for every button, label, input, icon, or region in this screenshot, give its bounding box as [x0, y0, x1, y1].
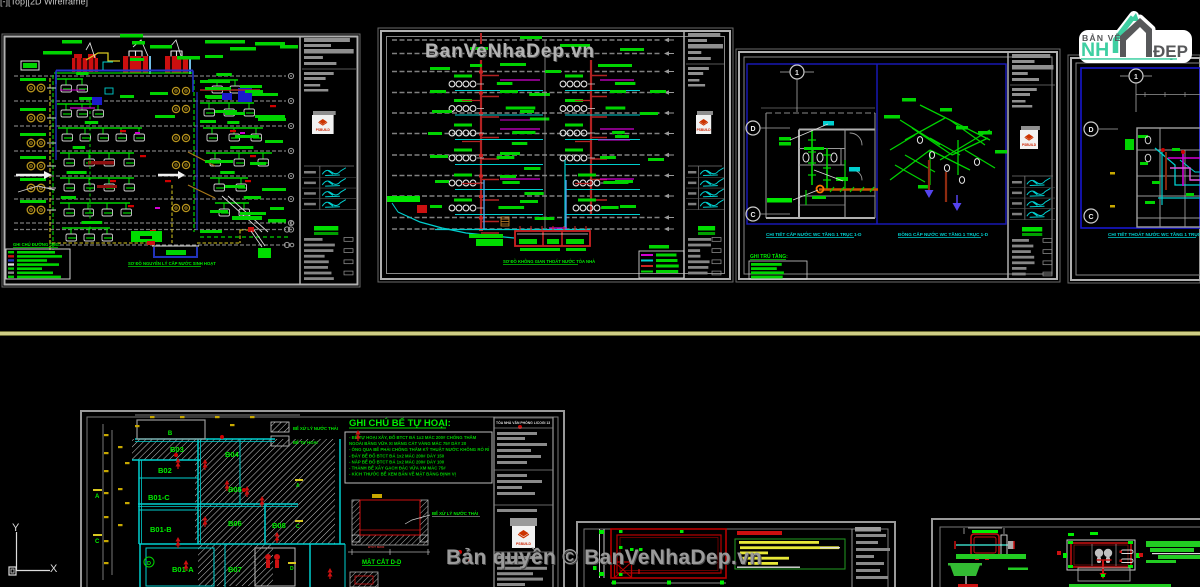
svg-text:GHI TRÚ TẦNG:: GHI TRÚ TẦNG:: [750, 253, 788, 260]
svg-text:D: D: [750, 126, 755, 133]
svg-text:B01-B: B01-B: [150, 525, 172, 534]
svg-text:B07: B07: [228, 565, 242, 574]
svg-text:C: C: [1088, 214, 1093, 221]
svg-text:GHI CHÚ BỂ TỰ HOẠI:: GHI CHÚ BỂ TỰ HOẠI:: [349, 417, 451, 429]
svg-text:B01-A: B01-A: [172, 565, 194, 574]
svg-text:D: D: [147, 561, 151, 567]
svg-text:C: C: [750, 212, 755, 219]
svg-text:1: 1: [1134, 74, 1138, 81]
svg-text:ĐẸP: ĐẸP: [1153, 42, 1188, 61]
svg-text:B08: B08: [272, 521, 286, 530]
svg-text:BanVeNhaDep.vn: BanVeNhaDep.vn: [425, 41, 595, 62]
svg-text:- BỂ TỰ HOẠI XÂY, ĐỔ BTCT ĐÁ 1: - BỂ TỰ HOẠI XÂY, ĐỔ BTCT ĐÁ 1x2 MÁC 200…: [349, 435, 477, 440]
svg-text:- NẮP BỂ ĐỔ BTCT ĐÁ 1x2 MÁC 20: - NẮP BỂ ĐỔ BTCT ĐÁ 1x2 MÁC 200# DÀY 100: [349, 459, 445, 464]
svg-text:SƠ ĐỒ NGUYÊN LÝ CẤP NƯỚC SINH: SƠ ĐỒ NGUYÊN LÝ CẤP NƯỚC SINH HOẠT: [128, 261, 216, 266]
svg-text:ĐỒNG CẤP NƯỚC WC TẦNG 1 TRỤC 1: ĐỒNG CẤP NƯỚC WC TẦNG 1 TRỤC 1-D: [898, 230, 989, 237]
svg-text:TÒA NHÀ VĂN PHÒNG LICOGI 13: TÒA NHÀ VĂN PHÒNG LICOGI 13: [496, 420, 550, 425]
svg-text:- ĐÁY BỂ ĐỔ BTCT ĐÁ 1x2 MÁC 20: - ĐÁY BỂ ĐỔ BTCT ĐÁ 1x2 MÁC 200# DÀY 150: [349, 453, 445, 458]
svg-text:B06: B06: [228, 519, 242, 528]
svg-text:PSBUILD: PSBUILD: [316, 128, 331, 132]
svg-text:NH: NH: [1081, 39, 1109, 61]
svg-text:CHI TIẾT CẤP NƯỚC WC TẦNG 1 TR: CHI TIẾT CẤP NƯỚC WC TẦNG 1 TRỤC 1-D: [766, 230, 862, 237]
svg-text:C: C: [95, 539, 100, 545]
svg-text:B04: B04: [225, 450, 240, 459]
svg-text:B01-C: B01-C: [148, 493, 170, 502]
svg-text:Bản quyền © BanVeNhaDep.vn: Bản quyền © BanVeNhaDep.vn: [446, 546, 762, 569]
svg-text:B: B: [168, 431, 173, 437]
svg-text:SƠ ĐỒ KHÔNG GIAN THOÁT NƯỚC TÒ: SƠ ĐỒ KHÔNG GIAN THOÁT NƯỚC TÒA NHÀ: [503, 259, 595, 264]
svg-text:X: X: [50, 563, 58, 575]
svg-text:BỂ TỰ HOẠI: BỂ TỰ HOẠI: [293, 440, 318, 445]
svg-text:BỂ XỬ LÝ NƯỚC THẢI: BỂ XỬ LÝ NƯỚC THẢI: [432, 511, 478, 516]
svg-text:CHI TIẾT THOÁT NƯỚC WC TẦNG 1: CHI TIẾT THOÁT NƯỚC WC TẦNG 1 TRỤC: [1108, 230, 1200, 237]
svg-text:D: D: [1088, 127, 1093, 134]
svg-text:PSBUILD: PSBUILD: [697, 128, 712, 132]
svg-text:C: C: [296, 524, 300, 530]
svg-text:BỂ XỬ LÝ NƯỚC THẢI: BỂ XỬ LÝ NƯỚC THẢI: [293, 426, 338, 431]
svg-text:B03: B03: [170, 445, 184, 454]
svg-text:PSBUILD: PSBUILD: [1022, 143, 1037, 147]
svg-text:D: D: [290, 566, 294, 572]
svg-text:1: 1: [795, 70, 799, 77]
svg-text:B02: B02: [158, 466, 172, 475]
svg-text:BTCT M200: BTCT M200: [368, 545, 385, 549]
svg-text:- KÍCH THƯỚC BỂ XEM BẢN VẼ MẶT: - KÍCH THƯỚC BỂ XEM BẢN VẼ MẶT BẰNG ĐỊNH…: [349, 472, 456, 477]
svg-text:GHI CHÚ ĐƯỜNG ỐNG:: GHI CHÚ ĐƯỜNG ỐNG:: [13, 242, 60, 247]
svg-text:- THÀNH BỂ XÂY GẠCH ĐẶC VỮA XM: - THÀNH BỂ XÂY GẠCH ĐẶC VỮA XM MÁC 75#: [349, 466, 446, 471]
svg-text:NGOÀI BẰNG VỮA XI MĂNG CÁT VÀN: NGOÀI BẰNG VỮA XI MĂNG CÁT VÀNG MÁC 75# …: [349, 441, 467, 446]
svg-text:[-][Top][2D Wireframe]: [-][Top][2D Wireframe]: [0, 0, 88, 7]
svg-text:B05: B05: [228, 485, 242, 494]
svg-text:A: A: [296, 483, 300, 489]
svg-text:A: A: [95, 494, 100, 500]
svg-text:MẶT CẮT D-D: MẶT CẮT D-D: [362, 558, 402, 566]
svg-text:- ỐNG QUA BỂ PHẢI CHỐNG THẤM K: - ỐNG QUA BỂ PHẢI CHỐNG THẤM KỸ THUẬT NƯ…: [349, 447, 490, 452]
